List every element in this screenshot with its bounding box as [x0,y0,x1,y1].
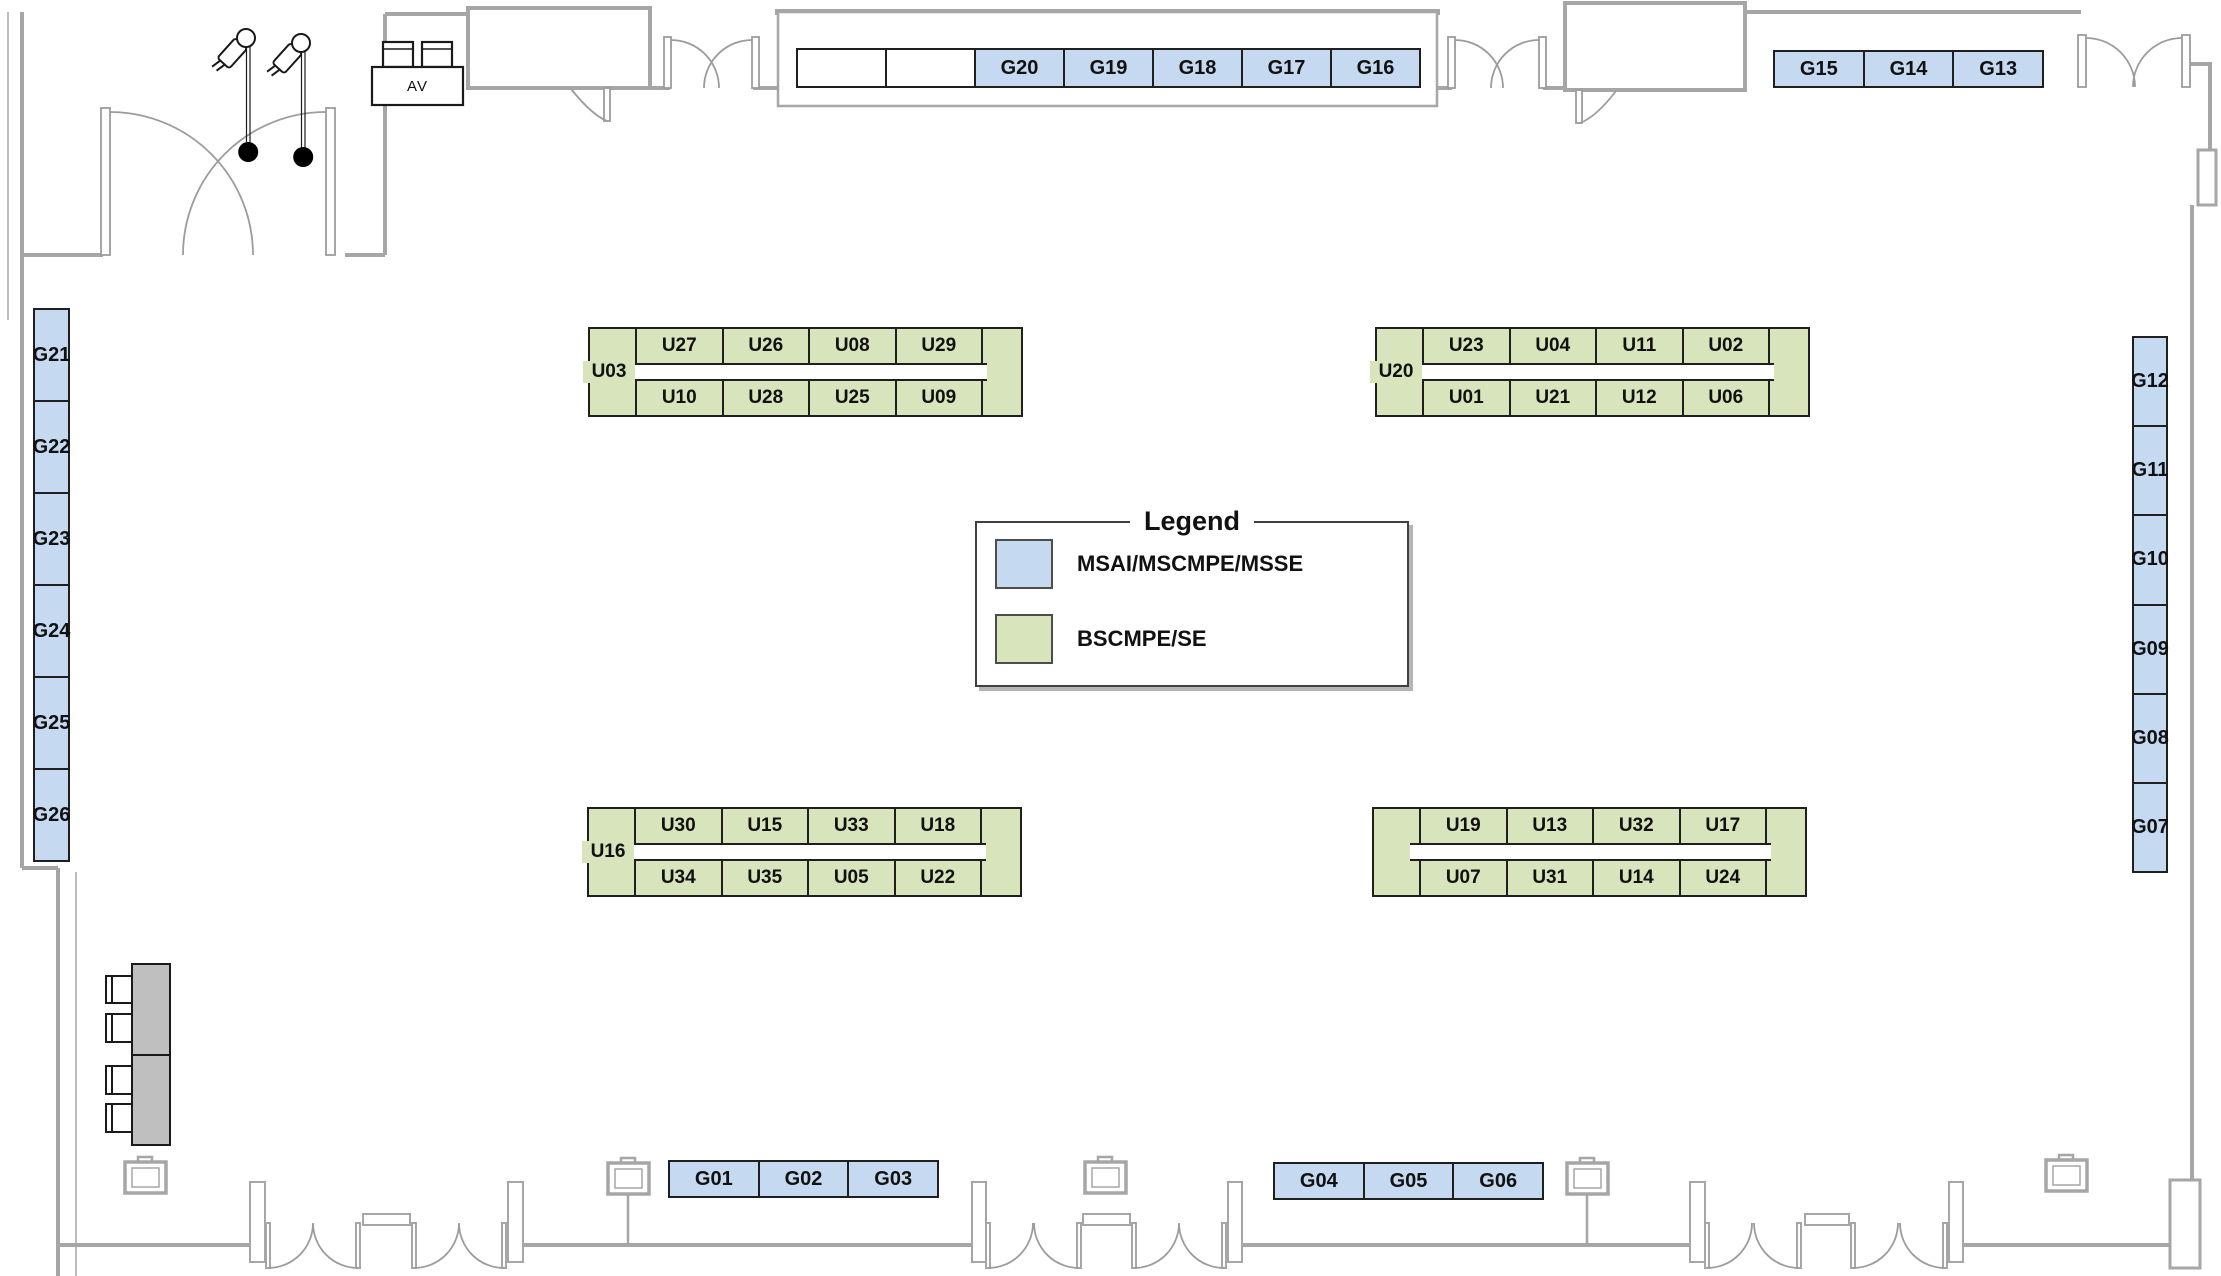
table-U05: U05 [807,861,894,895]
table-unassigned-1 [798,50,885,86]
av-cart-label: AV [372,67,463,105]
table-U08: U08 [808,329,895,363]
legend-label-msai: MSAI/MSCMPE/MSSE [1077,551,1303,577]
table-G25: G25 [35,676,68,768]
table-G19: G19 [1063,50,1152,86]
table-U04: U04 [1509,329,1596,363]
table-G14: G14 [1863,52,1953,86]
south-left-table-strip: G01 G02 G03 [668,1160,939,1198]
table-U30: U30 [634,809,721,843]
legend-label-bscmpe: BSCMPE/SE [1077,626,1207,652]
table-U31: U31 [1506,861,1593,895]
table-U06: U06 [1682,381,1771,415]
poster-island-lower-left: U30 U15 U33 U18 U34 U35 U05 U22 U16 [587,807,1022,897]
table-G18: G18 [1152,50,1241,86]
table-U13: U13 [1506,809,1593,843]
east-table-column: G12 G11 G10 G09 G08 G07 [2132,336,2168,873]
legend-swatch-msai [995,539,1053,589]
table-U12: U12 [1595,381,1682,415]
stage-table-strip: G20 G19 G18 G17 G16 [796,48,1421,88]
table-G09: G09 [2134,604,2166,693]
table-G08: G08 [2134,693,2166,782]
table-U16: U16 [582,841,634,863]
table-U11: U11 [1595,329,1682,363]
table-U21: U21 [1509,381,1596,415]
table-G02: G02 [758,1162,848,1196]
table-U18: U18 [894,809,983,843]
table-G03: G03 [847,1162,937,1196]
island-aisle [626,363,987,381]
table-G24: G24 [35,584,68,676]
table-G23: G23 [35,492,68,584]
exhibit-hall-floor-plan: G20 G19 G18 G17 G16 G15 G14 G13 G21 G22 … [0,0,2221,1276]
table-unassigned-2 [885,50,974,86]
chair-icon [106,976,132,1132]
table-U29: U29 [895,329,984,363]
table-U09: U09 [895,381,984,415]
island-aisle [1413,363,1774,381]
table-G22: G22 [35,400,68,492]
table-G16: G16 [1330,50,1419,86]
table-G06: G06 [1452,1164,1542,1198]
table-U34: U34 [634,861,721,895]
poster-island-lower-right: U19 U13 U32 U17 U07 U31 U14 U24 [1372,807,1807,897]
table-U27: U27 [635,329,722,363]
table-U14: U14 [1592,861,1679,895]
table-U22: U22 [894,861,983,895]
table-U17: U17 [1679,809,1768,843]
table-U19: U19 [1419,809,1506,843]
west-table-column: G21 G22 G23 G24 G25 G26 [33,308,70,862]
table-G26: G26 [35,768,68,860]
poster-island-upper-right: U23 U04 U11 U02 U01 U21 U12 U06 U20 [1375,327,1810,417]
table-U28: U28 [722,381,809,415]
table-U25: U25 [808,381,895,415]
table-U20: U20 [1370,361,1422,383]
table-G05: G05 [1363,1164,1453,1198]
table-G20: G20 [974,50,1063,86]
island-aisle [1410,843,1771,861]
table-U26: U26 [722,329,809,363]
table-G07: G07 [2134,782,2166,871]
legend-title: Legend [1130,506,1254,537]
table-U15: U15 [721,809,808,843]
legend-swatch-bscmpe [995,614,1053,664]
table-U23: U23 [1422,329,1509,363]
northeast-table-strip: G15 G14 G13 [1773,50,2044,88]
table-G21: G21 [35,310,68,400]
table-U24: U24 [1679,861,1768,895]
table-U07: U07 [1419,861,1506,895]
table-U01: U01 [1422,381,1509,415]
table-G11: G11 [2134,425,2166,514]
table-U33: U33 [807,809,894,843]
table-U03: U03 [583,361,635,383]
table-G17: G17 [1241,50,1330,86]
legend-box: Legend MSAI/MSCMPE/MSSE BSCMPE/SE [975,521,1409,687]
head-tables [106,964,170,1145]
table-G12: G12 [2134,338,2166,425]
table-U02: U02 [1682,329,1771,363]
table-G04: G04 [1275,1164,1363,1198]
table-G10: G10 [2134,514,2166,603]
table-G15: G15 [1775,52,1863,86]
poster-island-upper-left: U27 U26 U08 U29 U10 U28 U25 U09 U03 [588,327,1023,417]
table-G01: G01 [670,1162,758,1196]
island-aisle [625,843,986,861]
table-U35: U35 [721,861,808,895]
table-U32: U32 [1592,809,1679,843]
south-right-table-strip: G04 G05 G06 [1273,1162,1544,1200]
microphone-icon [211,29,314,167]
table-U10: U10 [635,381,722,415]
table-G13: G13 [1952,52,2042,86]
easel-sign-icon [125,1155,2087,1245]
